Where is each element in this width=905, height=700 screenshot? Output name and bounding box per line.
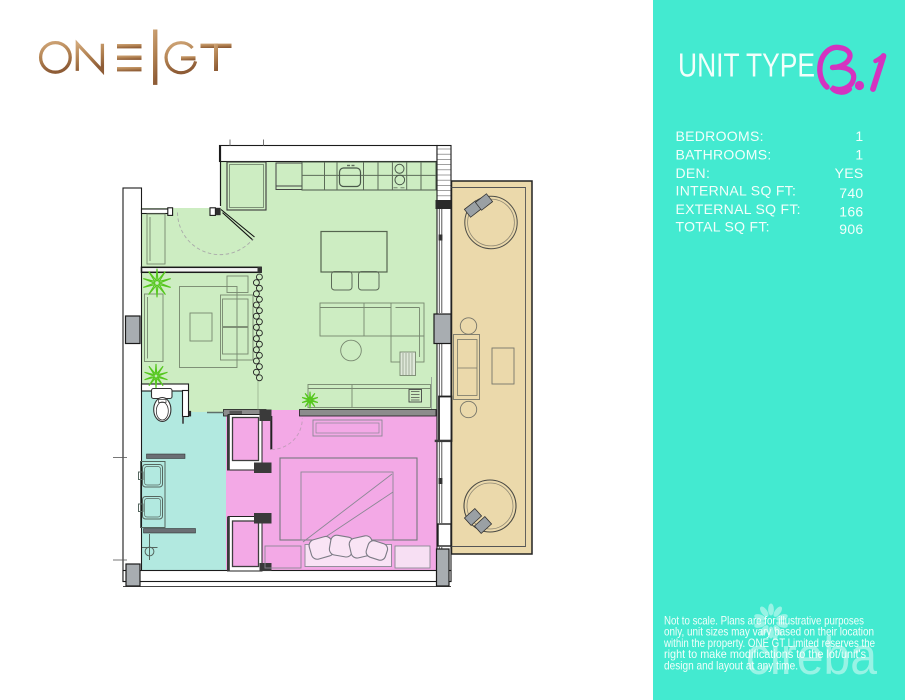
- svg-text:1: 1: [855, 128, 863, 144]
- svg-text:906: 906: [839, 221, 863, 237]
- svg-text:BEDROOMS:: BEDROOMS:: [676, 128, 764, 144]
- svg-text:YES: YES: [835, 165, 864, 181]
- svg-text:DEN:: DEN:: [676, 165, 711, 181]
- svg-text:740: 740: [839, 185, 863, 201]
- svg-text:cireba: cireba: [746, 627, 877, 686]
- svg-text:UNIT TYPE: UNIT TYPE: [678, 48, 815, 85]
- svg-text:166: 166: [839, 204, 863, 220]
- svg-text:TOTAL SQ FT:: TOTAL SQ FT:: [676, 219, 770, 235]
- svg-text:BATHROOMS:: BATHROOMS:: [676, 147, 772, 163]
- svg-text:1: 1: [855, 147, 863, 163]
- svg-text:EXTERNAL SQ FT:: EXTERNAL SQ FT:: [676, 201, 801, 217]
- svg-text:INTERNAL SQ FT:: INTERNAL SQ FT:: [676, 183, 797, 199]
